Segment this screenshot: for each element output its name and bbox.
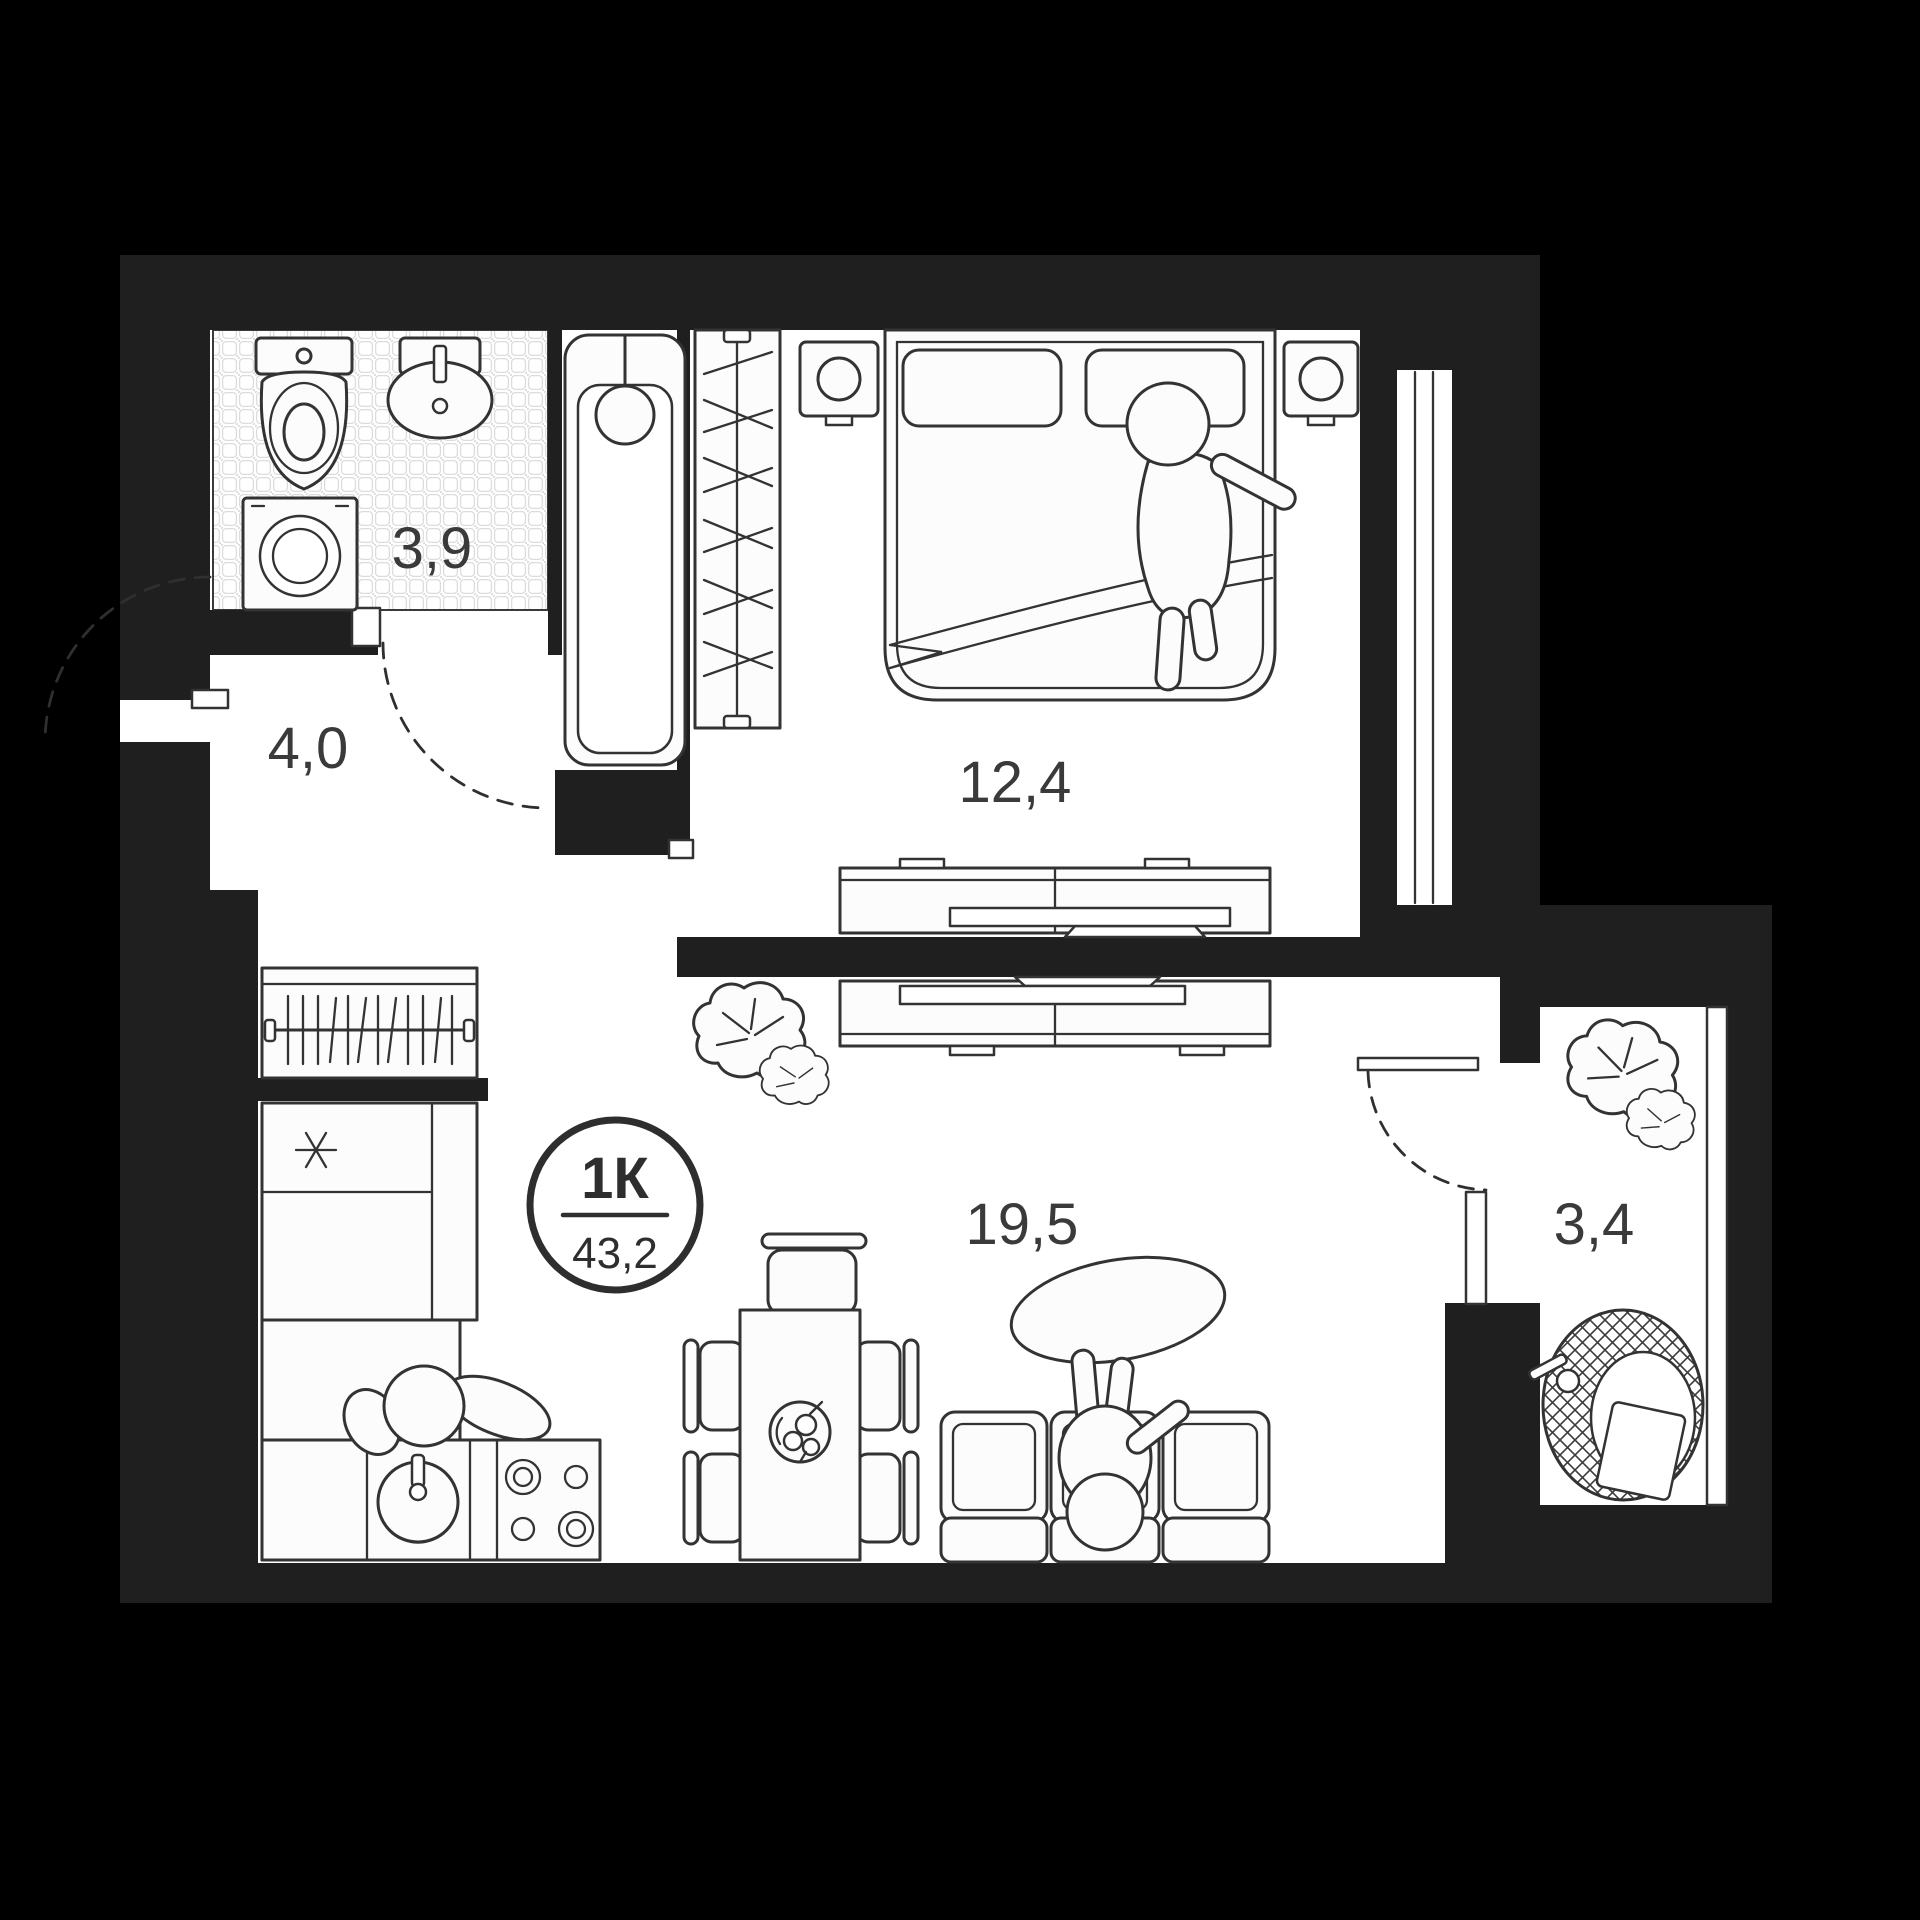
dining-chair-left-1 xyxy=(684,1340,744,1432)
bathroom-sink-icon xyxy=(388,338,492,438)
entrance-door-jamb xyxy=(192,690,228,708)
tv-stand-bedroom-icon xyxy=(840,859,1270,937)
balcony-block-window xyxy=(1466,1192,1486,1304)
balcony-area-label: 3,4 xyxy=(1554,1192,1635,1257)
wall-balcony-bottom xyxy=(1500,1505,1727,1603)
wall-right-outer xyxy=(1452,255,1540,905)
wall-top xyxy=(120,255,1540,330)
balcony-door-leaf xyxy=(1358,1058,1478,1070)
bedroom-wardrobe-icon xyxy=(695,330,780,728)
wall-left-lower xyxy=(120,890,258,1603)
bedroom-area-label: 12,4 xyxy=(959,750,1072,815)
tv xyxy=(950,908,1230,926)
washing-machine-icon xyxy=(243,498,357,610)
dining-chair-top xyxy=(762,1234,866,1314)
tv-mount xyxy=(1065,926,1205,937)
balcony-window xyxy=(1707,1007,1727,1505)
nightstand-right-icon xyxy=(1284,342,1358,425)
dining-chair-right-1 xyxy=(856,1340,918,1432)
wall-bottom xyxy=(120,1563,1512,1603)
wall-balcony-top xyxy=(1500,905,1727,1007)
wall-under-wardrobe xyxy=(258,1078,488,1101)
bathroom-door-jamb xyxy=(352,608,380,646)
wall-left-mid xyxy=(120,742,210,890)
wall-window-top-stub xyxy=(1397,255,1452,370)
badge-area-label: 43,2 xyxy=(572,1229,658,1278)
hallway xyxy=(262,968,477,1078)
living-area-label: 19,5 xyxy=(966,1192,1079,1257)
wall-bedroom-right xyxy=(1360,255,1397,937)
fridge-icon xyxy=(262,1103,477,1320)
tv-stand-living-icon xyxy=(840,977,1270,1055)
wall-balcony-outer xyxy=(1727,905,1772,1603)
nightstand-left-icon xyxy=(800,342,878,425)
bedroom-door-jamb xyxy=(669,840,693,858)
hallway-wardrobe-icon xyxy=(262,968,477,1078)
bathtub-icon xyxy=(565,335,685,765)
dining-chair-right-2 xyxy=(856,1452,918,1544)
wall-mid xyxy=(677,937,1502,977)
badge-type-label: 1К xyxy=(581,1146,649,1211)
fruit-bowl-icon xyxy=(770,1402,830,1462)
floor-plan: 3,9 12,4 4,0 19,5 3,4 1К 43,2 xyxy=(0,0,1920,1920)
hallway-area-label: 4,0 xyxy=(268,716,349,781)
dining-chair-left-2 xyxy=(684,1452,744,1544)
bedroom-window xyxy=(1397,370,1452,905)
apartment-type-badge: 1К 43,2 xyxy=(530,1120,700,1290)
tv xyxy=(900,986,1185,1004)
wall-bath-bottom xyxy=(185,610,378,655)
wall-bath-divider xyxy=(548,330,562,655)
tv-mount xyxy=(1015,977,1160,986)
bathroom-area-label: 3,9 xyxy=(392,516,473,581)
